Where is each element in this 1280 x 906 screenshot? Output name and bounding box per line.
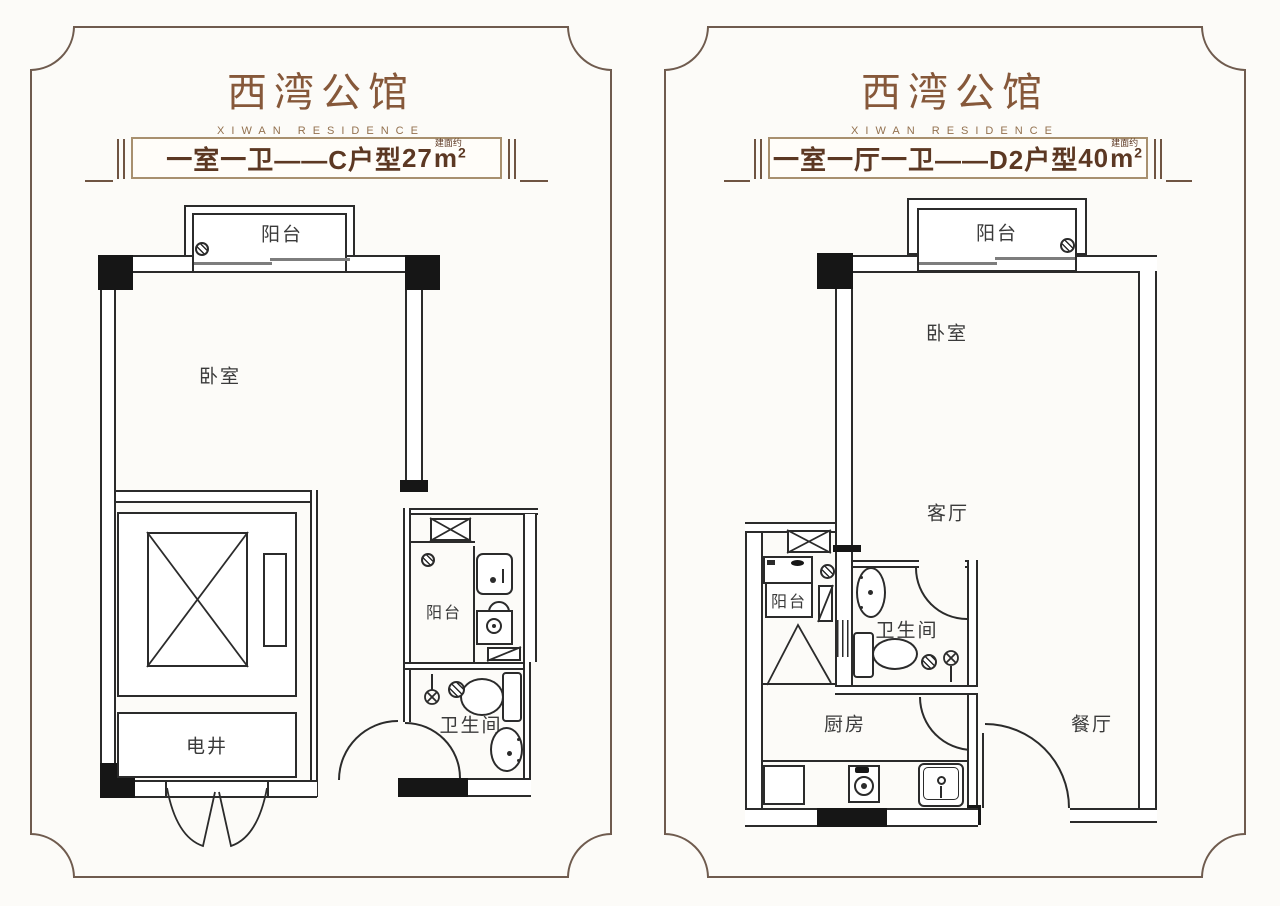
basin-tap-dot — [860, 576, 863, 579]
room-label-bathroom: 卫生间 — [439, 711, 502, 738]
basin-icon — [490, 727, 523, 772]
column — [98, 255, 133, 290]
room-label-balcony: 阳台 — [261, 220, 303, 247]
wall-end-cap — [400, 480, 428, 492]
washer-dot — [492, 624, 496, 628]
toilet-tank-icon — [853, 632, 874, 678]
elevator-car — [147, 532, 248, 667]
wall-segment — [835, 552, 853, 620]
room-label-utility-balcony: 阳台 — [426, 599, 462, 623]
basin-drain-dot — [507, 751, 512, 756]
wall-segment — [1138, 271, 1157, 823]
sliding-door — [919, 262, 997, 265]
sink-faucet-stem — [940, 786, 942, 798]
vent-shaft — [787, 530, 831, 553]
wall-segment — [835, 685, 978, 695]
room-label-bedroom: 卧室 — [199, 362, 241, 389]
sliding-door — [995, 257, 1075, 260]
kitchen-door-arc — [919, 697, 973, 751]
wall-segment — [405, 290, 423, 480]
wall-line — [473, 546, 475, 662]
column — [817, 253, 853, 289]
water-heater-icon — [818, 585, 833, 622]
vent-x-icon — [430, 518, 471, 541]
stove-knob — [855, 767, 869, 773]
wall-segment — [967, 560, 978, 719]
wall-segment — [468, 778, 531, 797]
wall-segment — [523, 662, 531, 797]
sliding-door — [194, 262, 272, 265]
counter-line — [763, 760, 968, 762]
valve-icon — [943, 650, 959, 666]
vent-x-icon — [787, 530, 831, 553]
wall-fill — [398, 778, 468, 797]
elevator-x-icon — [147, 532, 248, 667]
double-swing-door — [165, 786, 269, 850]
elevator-counterweight — [263, 553, 287, 647]
wall-segment — [403, 508, 538, 515]
toilet-bowl-icon — [872, 638, 918, 670]
dining-door-arc — [985, 723, 1070, 808]
sink-faucet — [937, 776, 946, 785]
washer-panel — [767, 560, 775, 565]
wall-segment — [310, 490, 318, 797]
room-label-shaft: 电井 — [186, 732, 228, 759]
vent-shaft — [430, 518, 471, 541]
wall-segment — [405, 662, 523, 670]
faucet-dot — [490, 577, 496, 583]
floor-drain-icon — [421, 553, 435, 567]
basin-drain-dot — [868, 590, 873, 595]
valve-icon — [424, 689, 440, 705]
basin-tap-dot — [517, 759, 520, 762]
room-label-bedroom: 卧室 — [926, 319, 968, 346]
basin-tap-dot — [517, 738, 520, 741]
wall-segment — [835, 289, 853, 545]
sliding-door — [270, 258, 350, 261]
column — [405, 255, 440, 290]
shower-drain-icon — [448, 681, 465, 698]
toilet-tank-icon — [502, 672, 522, 722]
floor-drain-icon — [195, 242, 209, 256]
panel-unit-c: 西湾公馆 XIWAN RESIDENCE 一室一卫——C户型27建面约m2 阳台 — [30, 26, 612, 878]
floorplan-unit-c: 阳台 卧室 电井 — [30, 26, 612, 878]
washer-knob — [791, 560, 804, 566]
laundry-sink-icon — [476, 553, 513, 595]
valve-stem — [950, 666, 952, 682]
wall-segment — [116, 490, 313, 503]
room-label-living: 客厅 — [927, 499, 969, 526]
wall-window-hatch — [835, 620, 853, 657]
floorplan-unit-d2: 阳台 卧室 客厅 阳台 — [664, 26, 1246, 878]
panel-unit-d2: 西湾公馆 XIWAN RESIDENCE 一室一厅一卫——D2户型40建面约m2… — [664, 26, 1246, 878]
room-label-dining: 餐厅 — [1071, 710, 1113, 737]
wall-line — [982, 733, 984, 808]
wall-segment — [523, 514, 537, 662]
room-label-utility-balcony: 阳台 — [771, 588, 807, 612]
wall-segment — [967, 697, 978, 808]
wall-segment — [1070, 808, 1157, 823]
floor-drain-icon — [1060, 238, 1075, 253]
floor-drain-icon — [820, 564, 835, 579]
basin-tap-dot — [860, 606, 863, 609]
shelf-diagonal — [487, 647, 521, 661]
shower-drain-icon — [921, 654, 937, 670]
wall-segment — [403, 508, 411, 722]
counter-cabinet — [763, 765, 805, 805]
stove-burner-dot — [861, 783, 867, 789]
wall-end-cap — [833, 545, 861, 552]
bifold-door — [765, 623, 833, 685]
wall-segment — [745, 522, 763, 827]
room-label-kitchen: 厨房 — [824, 710, 866, 737]
water-heater-diagonal — [818, 585, 833, 622]
bathroom-door-arc — [915, 568, 967, 620]
entry-door-arc — [338, 720, 398, 780]
wall-fill — [817, 808, 887, 827]
wall-segment — [853, 560, 919, 568]
room-label-balcony: 阳台 — [976, 219, 1018, 246]
shelf — [487, 647, 521, 661]
wall-segment — [835, 657, 853, 685]
wall-line — [763, 683, 835, 685]
faucet-line — [502, 569, 504, 583]
floorplan-brochure: 西湾公馆 XIWAN RESIDENCE 一室一卫——C户型27建面约m2 阳台 — [0, 0, 1280, 906]
wall-line — [411, 541, 475, 543]
wall-segment — [100, 290, 116, 763]
valve-stem — [431, 674, 433, 690]
